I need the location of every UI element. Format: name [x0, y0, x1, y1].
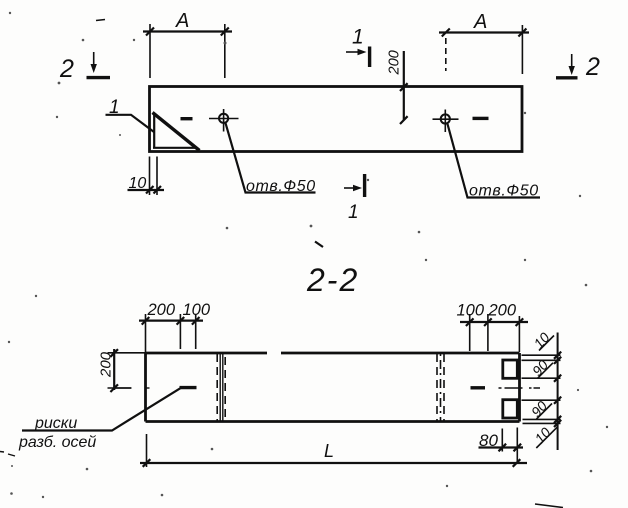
svg-text:A: A [473, 11, 487, 33]
svg-text:100: 100 [183, 301, 211, 319]
svg-text:отв.Ф50: отв.Ф50 [469, 183, 539, 200]
svg-text:10: 10 [530, 329, 552, 351]
svg-text:отв.Ф50: отв.Ф50 [246, 178, 316, 195]
svg-text:80: 80 [479, 431, 498, 450]
svg-text:2-2: 2-2 [306, 262, 359, 298]
svg-text:риски: риски [34, 415, 77, 432]
svg-text:2: 2 [59, 55, 74, 83]
svg-text:A: A [175, 10, 189, 32]
svg-text:200: 200 [488, 302, 517, 320]
svg-text:10: 10 [531, 424, 553, 446]
svg-text:1: 1 [348, 202, 359, 223]
svg-text:разб. осей: разб. осей [18, 434, 96, 451]
svg-text:2: 2 [585, 53, 600, 81]
svg-text:100: 100 [457, 302, 485, 320]
svg-text:200: 200 [147, 301, 176, 319]
svg-text:L: L [324, 441, 334, 461]
svg-text:200: 200 [387, 50, 403, 75]
svg-text:10: 10 [129, 175, 147, 192]
svg-text:1: 1 [109, 97, 120, 118]
svg-text:1: 1 [352, 26, 364, 49]
svg-text:200: 200 [98, 351, 115, 378]
